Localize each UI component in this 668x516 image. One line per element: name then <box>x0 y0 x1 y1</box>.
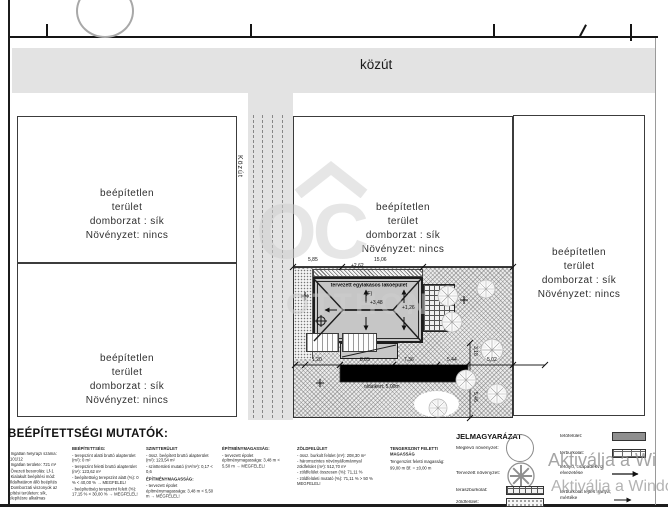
indicators-title: BEÉPÍTETTSÉGI MUTATÓK: <box>8 428 168 440</box>
fence-line <box>272 115 273 418</box>
site-plan-sheet: közút Közút beépítetlen terület domborza… <box>0 0 668 516</box>
dim-label-bottom-2: 8,05 <box>360 357 370 363</box>
indicator-line: - Övezeti besorolás: Lf-1 <box>8 469 65 474</box>
public-road-band <box>12 48 655 93</box>
parcel-text-line: beépítetlen <box>100 352 154 366</box>
indicator-line: - össz. beépített bruttó alapterület (m²… <box>146 454 216 465</box>
dim-label-bottom-5: 5,02 <box>487 357 497 363</box>
indicator-line: - Ingatlan területe: 721 m² <box>8 463 65 468</box>
parcel-text-line: terület <box>112 201 143 215</box>
dim-label-bottom-1: 1,20 <box>312 357 322 363</box>
dim-label-top-1: 5,85 <box>308 257 318 263</box>
indicator-line: - terepszint feletti bruttó alapterület … <box>72 465 139 476</box>
legend-label-planned-vegetation: Tervezett növényzet: <box>456 471 506 476</box>
parcel-text-line: domborzat : sík <box>542 274 616 288</box>
fence-line <box>253 115 254 418</box>
parcel-text-line: terület <box>564 260 595 274</box>
parcel-text-line: domborzat : sík <box>90 215 164 229</box>
legend-label-terrace-paving: teraszburkolat: <box>456 488 506 493</box>
indicator-heading: ÉPÍTMÉNYMAGASSÁG: <box>146 477 216 482</box>
parcel-text-line: domborzat : sík <box>90 380 164 394</box>
legend-green-swatch <box>506 498 544 507</box>
legend-existing-tree-symbol <box>506 434 534 462</box>
indicator-line: Tengerszint feletti magasság: <box>390 460 453 465</box>
parcel-lower-left: beépítetlen terület domborzat : sík Növé… <box>17 263 237 417</box>
parcel-text-line: Növényzet: nincs <box>86 229 169 243</box>
parcel-text-line: Növényzet: nincs <box>538 288 621 302</box>
parcel-text-line: beépítetlen <box>100 187 154 201</box>
parcel-middle: beépítetlen terület domborzat : sík Növé… <box>293 116 513 267</box>
survey-tick <box>46 24 48 37</box>
parcel-text-line: Növényzet: nincs <box>86 394 169 408</box>
indicator-line: - beépítettség terepszint alatt (%): 0 %… <box>72 476 139 487</box>
terrace-grid <box>423 284 455 332</box>
indicator-heading: BEÉPÍTETTSÉG: <box>72 447 139 452</box>
fence-line <box>262 115 263 418</box>
parking-stall <box>342 333 377 352</box>
dim-label-bottom-3: 7,36 <box>404 357 414 363</box>
legend-label-roof-surface: tetőfelület: <box>560 434 610 439</box>
legend-terrace-swatch <box>506 486 544 495</box>
legend-label-green-area: zöldfelület: <box>456 500 506 505</box>
survey-tick <box>630 24 632 41</box>
existing-vegetation-ellipse <box>414 391 459 417</box>
indicator-line: - zöldfelületi mutató (%): 71,11 % > 50 … <box>297 477 374 488</box>
indicator-line: - Domborzati viszonyok az építési terüle… <box>8 486 65 502</box>
indicator-heading: ZÖLDFELÜLET <box>297 447 374 452</box>
page-border-right <box>655 37 656 505</box>
indicator-line: - beépítettség terepszint felett (%): 17… <box>72 487 139 498</box>
parcel-text-line: domborzat : sík <box>366 229 440 243</box>
parcel-text-line: terület <box>388 215 419 229</box>
indicator-line: - zöldfelület összesen (%): 71,11 % <box>297 471 374 476</box>
building-title-label: tervezett egylakásos lakóépület <box>327 283 410 289</box>
dim-label-top-offset: +2,62 <box>351 263 364 269</box>
legend-label-existing-vegetation: Meglévő növényzet: <box>456 446 506 451</box>
indicator-line: 99,00 m Bf. = ±0,00 m <box>390 466 453 471</box>
parcel-text-line: beépítetlen <box>552 246 606 260</box>
indicators-col-1: - Ingatlan helyrajzi száma: 1101/12 - In… <box>8 452 65 503</box>
parking-stall <box>306 333 339 352</box>
legend-label-drainage: lefolyó, csapadékvíz elvezetése <box>560 465 611 475</box>
indicator-heading: TENGERSZINT FELETTI MAGASSÁG <box>390 447 453 458</box>
indicators-col-5: ZÖLDFELÜLET - össz. burkolt felület (m²)… <box>297 447 374 488</box>
survey-circle-symbol <box>76 0 134 38</box>
parcel-text-line: terület <box>112 366 143 380</box>
indicator-line: - tervezett épület építménymagassága: 3,… <box>222 454 289 470</box>
building-title-suffix: (F) <box>327 291 410 296</box>
parcel-text-line: Növényzet: nincs <box>362 243 445 257</box>
survey-slash-tick <box>579 24 587 36</box>
dim-label-bottom-4: 5,44 <box>447 357 457 363</box>
indicator-line: - össz. burkolt felület (m²): 208,30 m² <box>297 454 374 459</box>
survey-tick <box>250 24 252 37</box>
legend-label-slope: térburkolat lejtés iránya, mértéke <box>560 490 611 500</box>
fence-line <box>282 115 283 418</box>
indicators-col-6: TENGERSZINT FELETTI MAGASSÁG Tengerszint… <box>390 447 453 472</box>
paved-walkway <box>313 269 423 277</box>
indicators-col-2: BEÉPÍTETTSÉG: - terepszint alatti bruttó… <box>72 447 139 498</box>
parcel-right: beépítetlen terület domborzat : sík Növé… <box>513 115 645 416</box>
page-border-bottom <box>0 504 668 507</box>
indicator-heading: ÉPÍTMÉNYMAGASSÁG: <box>222 447 289 452</box>
parcel-text-line: beépítetlen <box>376 201 430 215</box>
legend-label-paving: térburkolat: <box>560 451 610 456</box>
elevation-label-ridge: +3,48 <box>370 300 383 306</box>
indicators-col-3: SZINTTERÜLET - össz. beépített bruttó al… <box>146 447 216 501</box>
dim-label-right-2: 5,46 <box>472 392 478 402</box>
indicator-heading: SZINTTERÜLET <box>146 447 216 452</box>
survey-tick <box>493 24 495 37</box>
side-yard-label: oldalkert: 5,00m <box>364 384 400 390</box>
legend-roof-swatch <box>612 432 646 441</box>
parcel-upper-left: beépítetlen terület domborzat : sík Növé… <box>17 116 237 263</box>
public-road-vertical <box>248 93 293 420</box>
dim-label-right-1: 3,18 <box>472 346 478 356</box>
indicators-col-4: ÉPÍTMÉNYMAGASSÁG: - tervezett épület épí… <box>222 447 289 470</box>
public-road-vertical-label: Közút <box>236 155 243 178</box>
public-road-label: közút <box>360 57 392 72</box>
dim-label-top-2: 15,06 <box>374 257 387 263</box>
elevation-label-eave: +1,26 <box>402 305 415 311</box>
indicator-line: - háromszintes növényállománnyal zöldfel… <box>297 460 374 471</box>
indicator-line: - terepszint alatti bruttó alapterület (… <box>72 454 139 465</box>
indicator-line: - szintterületi mutató (m²/m²): 0,17 < 0… <box>146 465 216 476</box>
indicator-line: - tervezett épület építménymagassága: 3,… <box>146 484 216 500</box>
indicator-line: - Ingatlan helyrajzi száma: 1101/12 <box>8 452 65 463</box>
indicator-line: - Kialakult beépítési mód: Oldalhatáron … <box>8 475 65 486</box>
legend-paving-swatch <box>612 449 646 458</box>
